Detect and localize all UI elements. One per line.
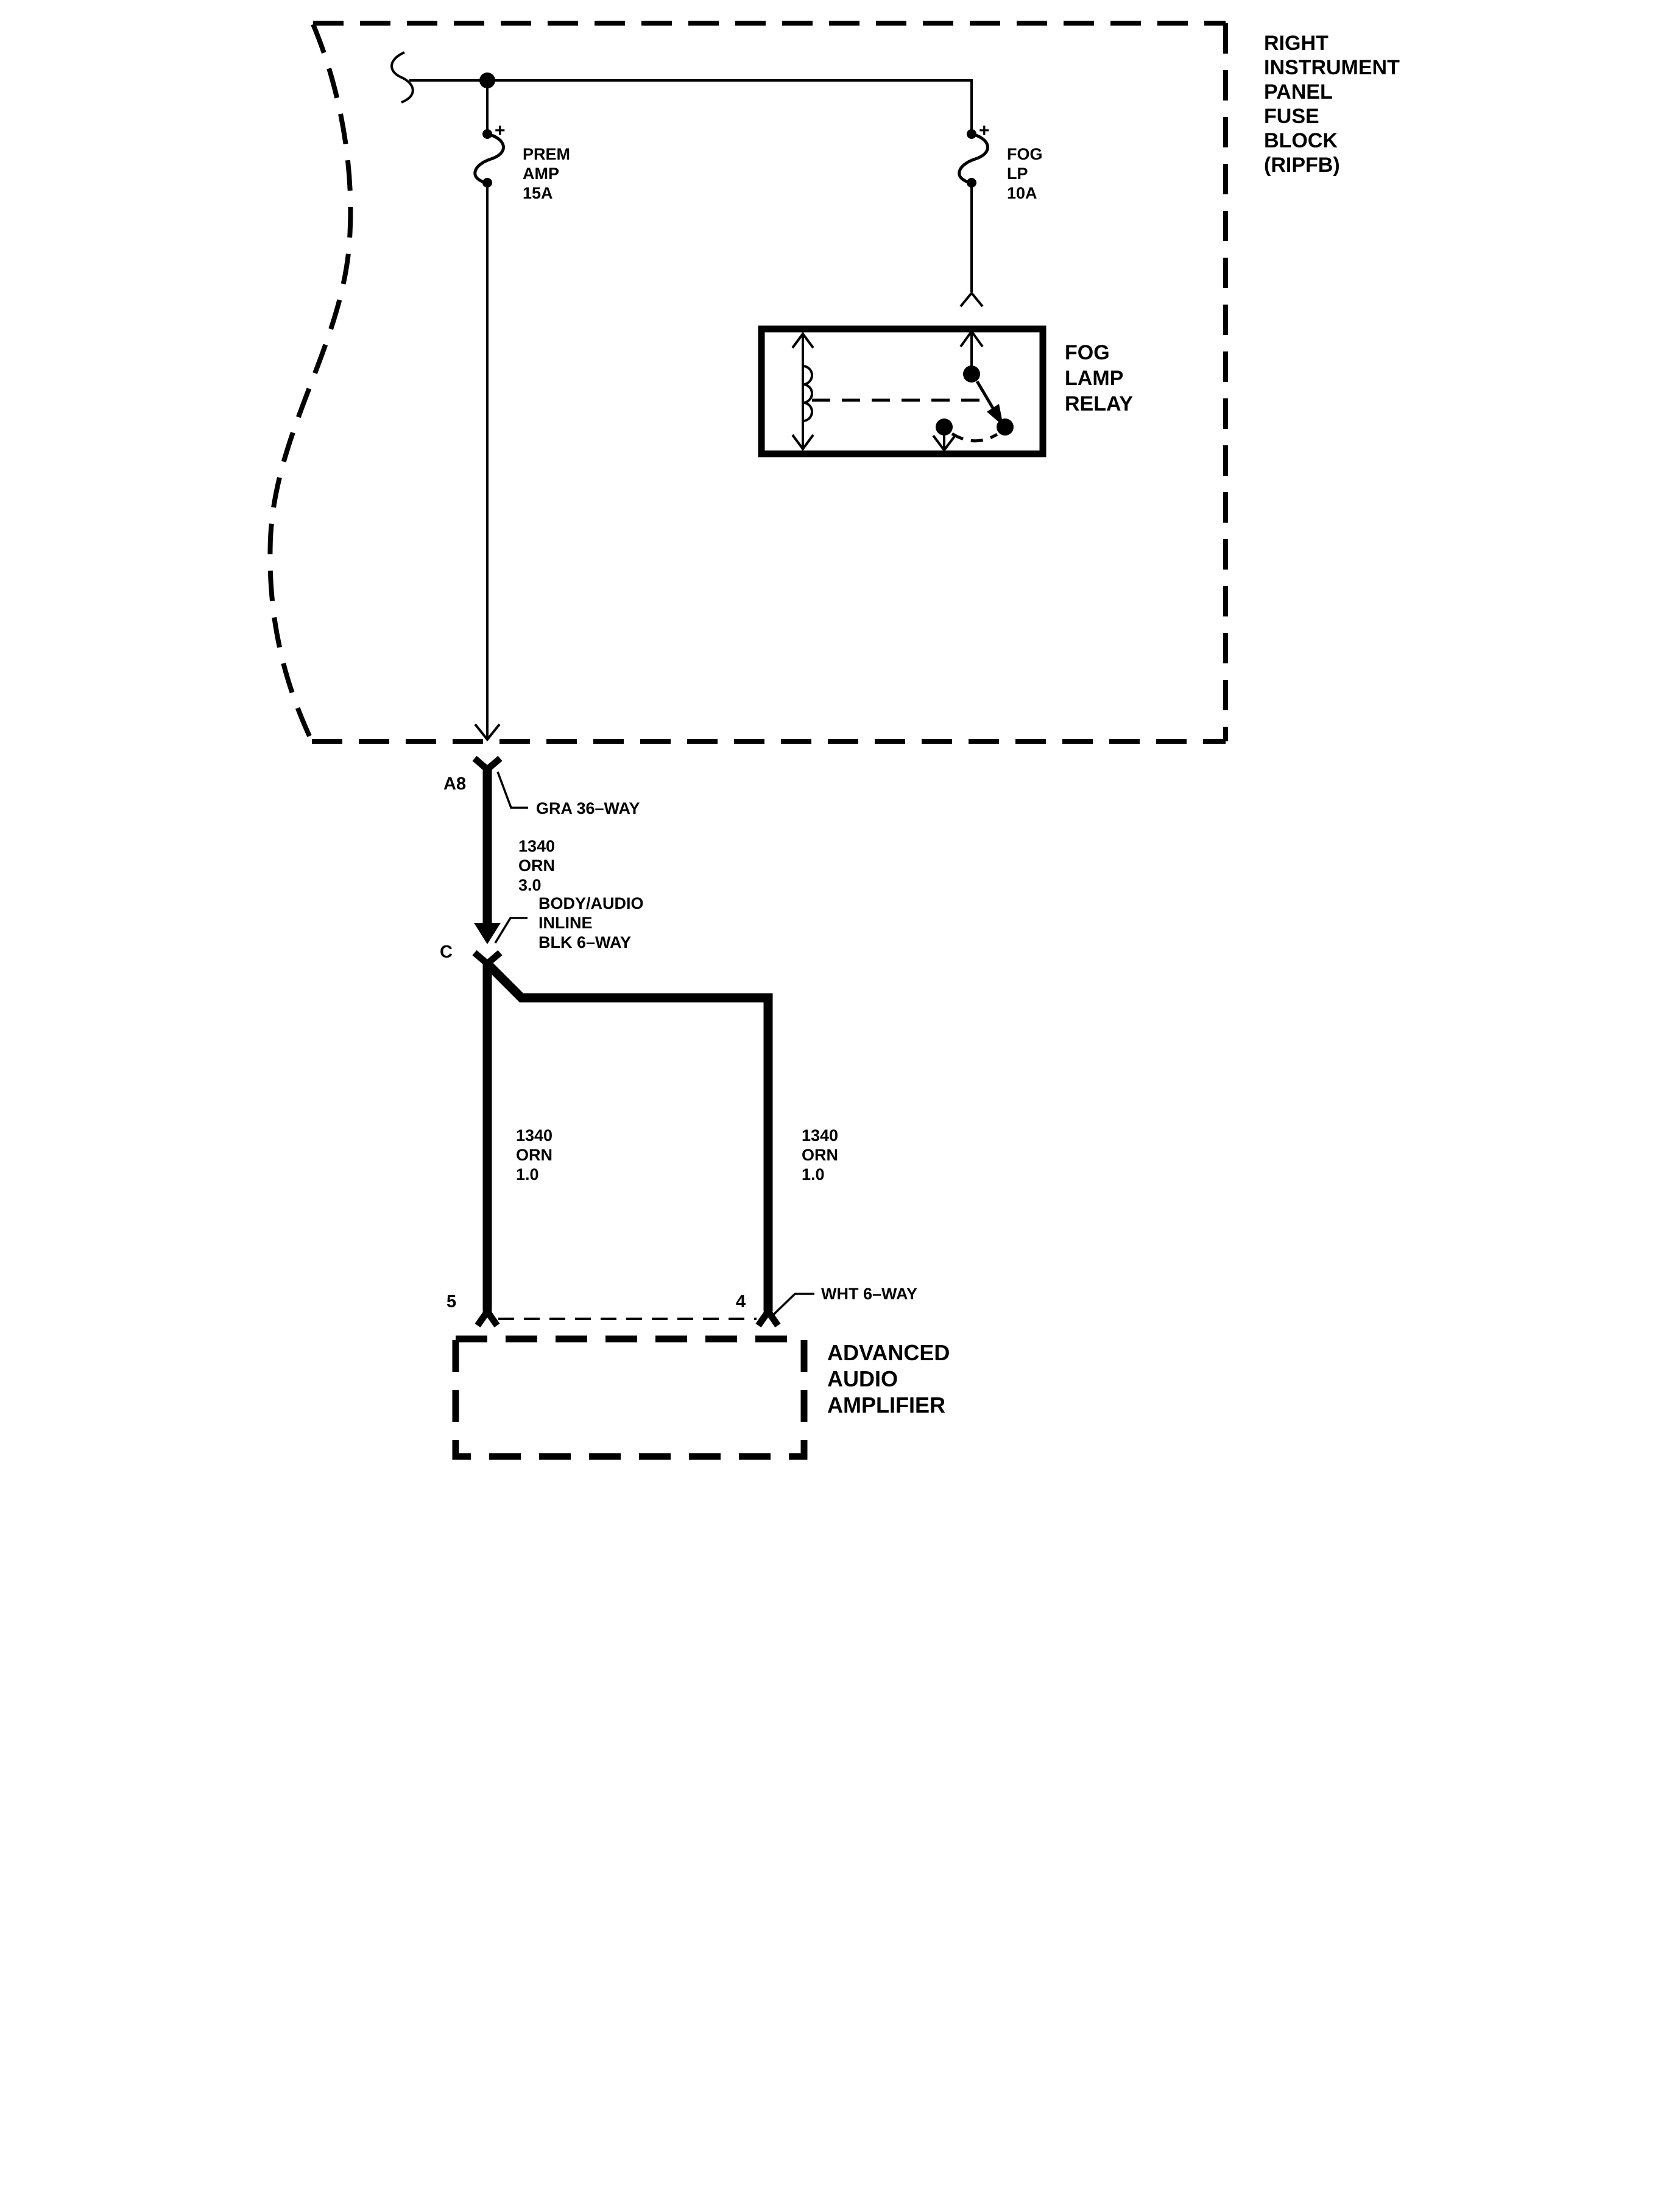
amplifier-label-line: AUDIO	[827, 1366, 898, 1391]
fuse-polarity-plus: +	[495, 121, 506, 141]
prem-amp-fuse: + PREM AMP 15A	[475, 121, 570, 740]
fuse-element-symbol	[959, 134, 988, 183]
fog-lamp-relay: FOG LAMP RELAY	[761, 329, 1133, 454]
fog-lp-fuse: + FOG LP 10A	[959, 121, 1043, 306]
connector-label: GRA 36–WAY	[536, 799, 640, 817]
wire-spec-line: 1.0	[516, 1165, 539, 1184]
fuse-label-line: PREM	[523, 145, 570, 163]
ripfb-title-line: RIGHT	[1264, 32, 1329, 55]
ripfb-title-line: PANEL	[1264, 80, 1333, 104]
connector-chevron	[478, 1312, 497, 1326]
amplifier-label-line: ADVANCED	[827, 1340, 950, 1365]
wire-spec-line: 1.0	[802, 1165, 825, 1184]
connector-pin-label: A8	[443, 774, 466, 794]
connector-pin-label: 4	[736, 1292, 746, 1312]
wire-spec-line: ORN	[516, 1146, 552, 1164]
relay-label-line: LAMP	[1065, 367, 1123, 390]
connector-pin-label: 5	[446, 1292, 456, 1312]
connector-label-line: BODY/AUDIO	[538, 894, 644, 913]
wiring-diagram-canvas: RIGHT INSTRUMENT PANEL FUSE BLOCK (RIPFB…	[0, 0, 1680, 2210]
leader-line	[495, 918, 528, 943]
connector-label-line: INLINE	[538, 914, 593, 932]
amplifier-box	[456, 1339, 804, 1456]
ripfb-box-left-wavy-edge	[270, 24, 350, 741]
amplifier-label-line: AMPLIFIER	[827, 1393, 945, 1417]
connector-label-line: BLK 6–WAY	[538, 933, 631, 951]
relay-output-contact-dot	[936, 418, 953, 436]
fuse-element-symbol	[475, 134, 504, 183]
fuse-label-line: 10A	[1007, 184, 1037, 202]
power-bus-wire	[409, 80, 972, 130]
connector-label: WHT 6–WAY	[821, 1285, 917, 1303]
connector-chevron	[475, 758, 500, 769]
wire-spec-line: ORN	[518, 856, 555, 875]
relay-switch-arm	[977, 381, 995, 411]
relay-contact-link-dashed-arc	[952, 434, 997, 441]
connector-chevron	[475, 953, 500, 964]
offpage-wire-squiggle	[392, 52, 413, 102]
wire-spec-line: ORN	[802, 1146, 838, 1164]
leader-line	[498, 772, 528, 808]
fuse-label-line: FOG	[1007, 145, 1043, 163]
wire-spec-line: 1340	[516, 1126, 552, 1145]
advanced-audio-amplifier: ADVANCED AUDIO AMPLIFIER	[456, 1339, 950, 1456]
relay-label-line: FOG	[1065, 341, 1110, 364]
relay-no-contact-dot	[997, 418, 1014, 436]
relay-coil-windings	[803, 366, 812, 421]
wire-spec-line: 1340	[518, 837, 555, 855]
fuse-label-line: 15A	[523, 184, 553, 202]
fuse-label-line: LP	[1007, 164, 1028, 183]
relay-label-line: RELAY	[1065, 392, 1133, 415]
ripfb-title: RIGHT INSTRUMENT PANEL FUSE BLOCK (RIPFB…	[1264, 32, 1400, 177]
connector-pin-label: C	[440, 942, 453, 962]
wire-spec-line: 3.0	[518, 876, 542, 894]
amplifier-feed-wires: 1340 ORN 1.0 1340 ORN 1.0	[487, 964, 838, 1312]
fuse-polarity-plus: +	[979, 121, 990, 141]
ripfb-title-line: (RIPFB)	[1264, 154, 1340, 177]
wiring-diagram-page: RIGHT INSTRUMENT PANEL FUSE BLOCK (RIPFB…	[0, 0, 1680, 2210]
relay-common-contact-dot	[963, 365, 980, 383]
fuse-label-line: AMP	[523, 164, 559, 183]
ripfb-title-line: BLOCK	[1264, 129, 1338, 152]
connector-c-inline: BODY/AUDIO INLINE BLK 6–WAY C	[440, 894, 644, 964]
relay-inline-fork-symbol	[961, 293, 983, 306]
ripfb-title-line: FUSE	[1264, 105, 1319, 128]
power-bus	[392, 52, 972, 130]
leader-line	[774, 1294, 814, 1315]
ripfb-title-line: INSTRUMENT	[1264, 56, 1400, 79]
connector-amp: 5 4 WHT 6–WAY	[446, 1285, 917, 1326]
wire-spec-line: 1340	[802, 1126, 838, 1145]
